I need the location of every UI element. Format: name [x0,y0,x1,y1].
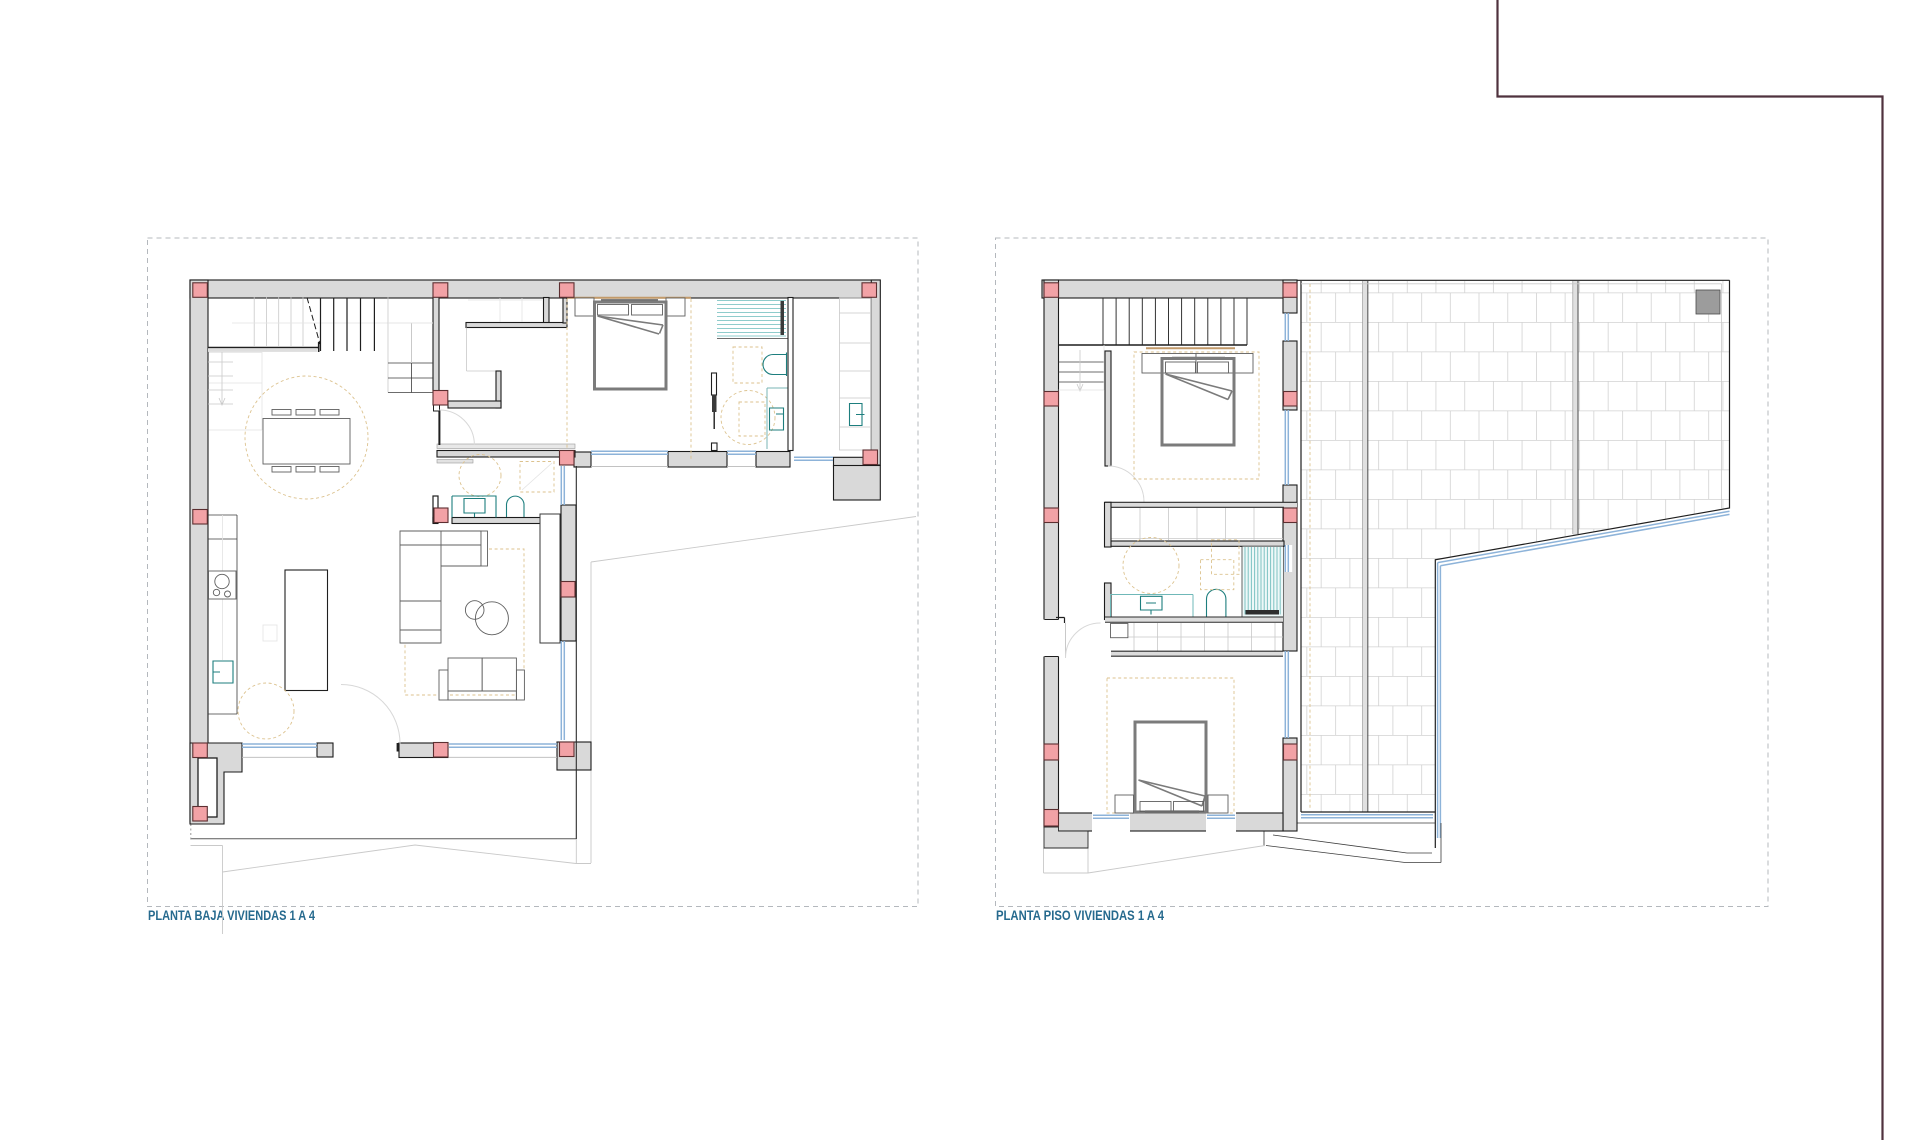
svg-text:PLANTA PISO VIVIENDAS 1 A 4: PLANTA PISO VIVIENDAS 1 A 4 [996,908,1164,923]
svg-text:PLANTA BAJA VIVIENDAS 1 A 4: PLANTA BAJA VIVIENDAS 1 A 4 [148,908,315,923]
